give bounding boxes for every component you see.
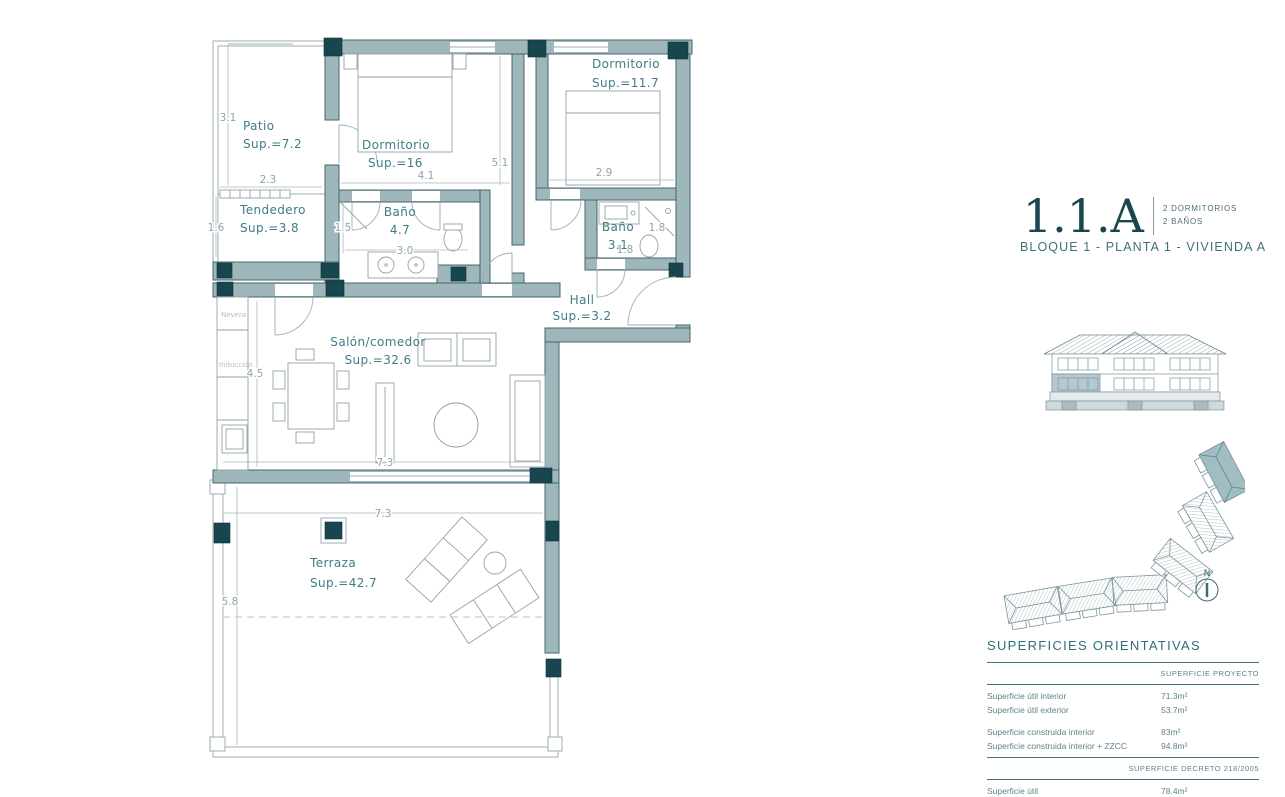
room-dorm2-sup: Sup.=11.7	[592, 76, 659, 90]
row-value: 83m²	[1161, 726, 1259, 740]
row-label: Superficie útil interior	[987, 690, 1161, 704]
row-label: Superficie construida interior + ZZCC	[987, 740, 1161, 754]
dim-terraza-height: 5.8	[222, 596, 239, 608]
building-elevation	[1040, 328, 1230, 423]
feature-bathrooms: 2 BAÑOS	[1163, 216, 1237, 229]
dim-terraza-width: 7.3	[375, 508, 392, 520]
unit-number: 1.1.A	[1023, 193, 1144, 239]
room-bano2-sup: 3.1	[608, 238, 628, 252]
room-tendedero-name: Tendedero	[239, 203, 306, 217]
room-bano1-name: Baño	[384, 205, 416, 219]
surfaces-table: SUPERFICIES ORIENTATIVAS SUPERFICIE PROY…	[987, 638, 1259, 797]
elevation-roof	[1044, 332, 1226, 354]
surfaces-title: SUPERFICIES ORIENTATIVAS	[987, 638, 1259, 653]
room-tendedero-sup: Sup.=3.8	[240, 221, 299, 235]
dim-salon-height: 4.5	[247, 368, 264, 380]
table-row: Superficie construida interior 83m²	[987, 726, 1259, 740]
elevation-body	[1046, 354, 1224, 410]
dim-patio-width: 2.3	[260, 174, 277, 186]
room-salon-name: Salón/comedor	[330, 335, 425, 349]
unit-subtitle: BLOQUE 1 - PLANTA 1 - VIVIENDA A	[1020, 240, 1240, 254]
table-row: Superficie útil exterior 53.7m²	[987, 704, 1259, 718]
room-dorm2-name: Dormitorio	[592, 57, 660, 71]
room-bano1-sup: 4.7	[390, 223, 410, 237]
dim-salon-width: 7.3	[377, 457, 394, 469]
site-plan: N	[995, 430, 1245, 630]
kitchen-fridge-label: Nevera	[221, 311, 246, 319]
room-terraza-sup: Sup.=42.7	[310, 576, 377, 590]
dim-bano1-height: 1.5	[335, 222, 352, 234]
row-label: Superficie útil	[987, 785, 1161, 797]
room-patio-sup: Sup.=7.2	[243, 137, 302, 151]
row-value: 78.4m²	[1161, 785, 1259, 797]
project-header: SUPERFICIE PROYECTO	[987, 663, 1259, 684]
dim-dorm2-width: 2.9	[596, 167, 613, 179]
feature-bedrooms: 2 DORMITORIOS	[1163, 203, 1237, 216]
row-value: 53.7m²	[1161, 704, 1259, 718]
dim-tendedero-height: 1.6	[208, 222, 225, 234]
unit-title-block: 1.1.A 2 DORMITORIOS 2 BAÑOS BLOQUE 1 - P…	[1020, 193, 1240, 254]
table-row: Superficie útil 78.4m²	[987, 785, 1259, 797]
floorplan-drawing: 3.1 2.3 1.6 4.1 5.1 2.9 1.5 3.0 1.8 1.8 …	[200, 25, 720, 770]
room-terraza-name: Terraza	[309, 556, 356, 570]
row-label: Superficie construida interior	[987, 726, 1161, 740]
room-dorm1-name: Dormitorio	[362, 138, 430, 152]
room-patio-name: Patio	[243, 119, 274, 133]
table-row: Superficie útil interior 71.3m²	[987, 690, 1259, 704]
dim-bano1-width: 3.0	[397, 245, 414, 257]
site-buildings	[1004, 442, 1245, 630]
row-value: 94.8m²	[1161, 740, 1259, 754]
title-divider	[1153, 197, 1154, 235]
room-hall-name: Hall	[570, 293, 595, 307]
room-bano2-name: Baño	[602, 220, 634, 234]
dim-dorm1-width: 4.1	[418, 170, 435, 182]
dim-pasillo-height: 5.1	[492, 157, 509, 169]
table-row: Superficie construida interior + ZZCC 94…	[987, 740, 1259, 754]
plan-sheet: 3.1 2.3 1.6 4.1 5.1 2.9 1.5 3.0 1.8 1.8 …	[0, 0, 1285, 797]
kitchen-hob-label: Inducción	[219, 361, 253, 369]
terraza-balustrade	[210, 480, 562, 757]
dim-bano2-width: 1.8	[649, 222, 666, 234]
room-salon-sup: Sup.=32.6	[344, 353, 411, 367]
decree-header: SUPERFICIE DECRETO 218/2005	[987, 758, 1259, 779]
row-value: 71.3m²	[1161, 690, 1259, 704]
room-hall-sup: Sup.=3.2	[553, 309, 612, 323]
room-dorm1-sup: Sup.=16	[368, 156, 423, 170]
north-label: N	[1204, 569, 1211, 579]
row-label: Superficie útil exterior	[987, 704, 1161, 718]
dim-patio-height: 3.1	[220, 112, 237, 124]
